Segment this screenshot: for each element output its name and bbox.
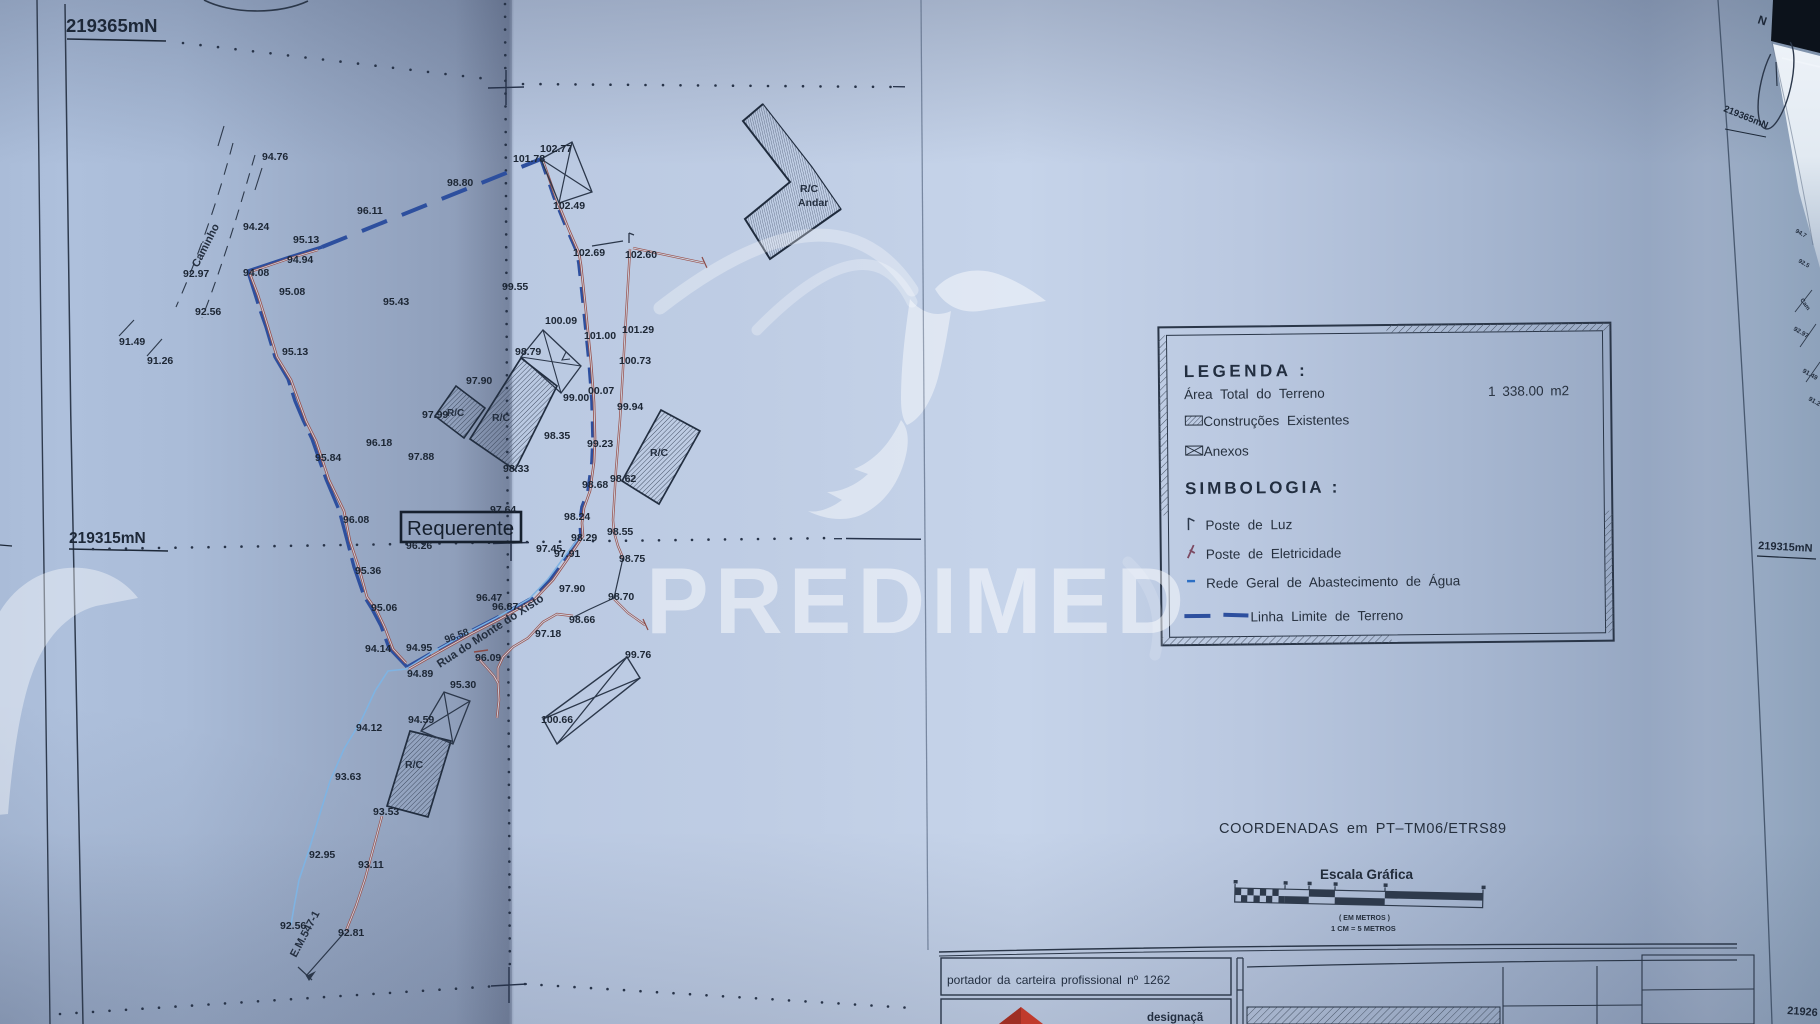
svg-text:92.97: 92.97 xyxy=(183,268,209,280)
svg-text:PREDIMED: PREDIMED xyxy=(646,548,1190,653)
svg-text:96.18: 96.18 xyxy=(366,437,392,449)
svg-text:219315mN: 219315mN xyxy=(69,530,146,547)
svg-text:Andar: Andar xyxy=(798,197,828,209)
svg-text:Área Total do Terreno: Área Total do Terreno xyxy=(1184,386,1325,402)
svg-text:95.43: 95.43 xyxy=(383,296,409,308)
svg-text:94.89: 94.89 xyxy=(407,668,433,680)
svg-text:94.76: 94.76 xyxy=(262,151,288,163)
svg-text:102.49: 102.49 xyxy=(553,200,585,212)
svg-text:97.99: 97.99 xyxy=(422,409,448,421)
svg-text:98.62: 98.62 xyxy=(610,473,636,485)
svg-text:95.30: 95.30 xyxy=(450,679,476,691)
svg-text:R/C: R/C xyxy=(650,447,669,459)
svg-text:94.12: 94.12 xyxy=(356,722,382,734)
svg-text:99.00: 99.00 xyxy=(563,392,589,404)
svg-text:Linha Limite de Terreno: Linha Limite de Terreno xyxy=(1250,608,1403,625)
svg-text:100.66: 100.66 xyxy=(541,714,573,726)
svg-text:91.49: 91.49 xyxy=(119,336,145,348)
svg-text:98.75: 98.75 xyxy=(619,553,645,565)
svg-text:95.13: 95.13 xyxy=(293,234,319,246)
svg-text:97.64: 97.64 xyxy=(490,504,516,516)
svg-text:101.29: 101.29 xyxy=(622,324,654,336)
svg-text:98.24: 98.24 xyxy=(564,511,590,523)
svg-text:1 CM = 5 METROS: 1 CM = 5 METROS xyxy=(1331,924,1396,933)
svg-text:92.95: 92.95 xyxy=(309,849,335,861)
svg-text:00.07: 00.07 xyxy=(588,385,614,397)
svg-text:92.56: 92.56 xyxy=(195,306,221,318)
svg-text:102.69: 102.69 xyxy=(573,247,605,259)
svg-text:94.95: 94.95 xyxy=(406,642,432,654)
svg-text:99.94: 99.94 xyxy=(617,401,643,413)
svg-text:R/C: R/C xyxy=(800,183,819,195)
svg-text:100.73: 100.73 xyxy=(619,355,651,367)
svg-text:R/C: R/C xyxy=(492,412,511,424)
svg-text:99.23: 99.23 xyxy=(587,438,613,450)
svg-text:93.63: 93.63 xyxy=(335,771,361,783)
svg-text:96.09: 96.09 xyxy=(475,652,501,664)
svg-text:98.33: 98.33 xyxy=(503,463,529,475)
svg-text:95.36: 95.36 xyxy=(355,565,381,577)
svg-text:91.26: 91.26 xyxy=(147,355,173,367)
svg-text:95.13: 95.13 xyxy=(282,346,308,358)
svg-text:99.55: 99.55 xyxy=(502,281,528,293)
svg-text:portador da carteira profissio: portador da carteira profissional nº 126… xyxy=(947,973,1171,987)
svg-text:97.90: 97.90 xyxy=(466,375,492,387)
svg-text:97.90: 97.90 xyxy=(559,583,585,595)
svg-text:92.81: 92.81 xyxy=(338,927,364,939)
svg-text:97.88: 97.88 xyxy=(408,451,434,463)
svg-text:Rede Geral de Abastecimento de: Rede Geral de Abastecimento de Água xyxy=(1206,573,1461,591)
svg-text:( EM METROS ): ( EM METROS ) xyxy=(1339,915,1390,922)
svg-text:95.06: 95.06 xyxy=(371,602,397,614)
svg-text:98.55: 98.55 xyxy=(607,526,633,538)
svg-text:94.94: 94.94 xyxy=(287,254,313,266)
svg-text:95.84: 95.84 xyxy=(315,452,341,464)
svg-text:96.26: 96.26 xyxy=(406,540,432,552)
svg-text:94.14: 94.14 xyxy=(365,643,391,655)
svg-text:98.66: 98.66 xyxy=(569,614,595,626)
svg-text:98.35: 98.35 xyxy=(544,430,570,442)
svg-text:98.79: 98.79 xyxy=(515,346,541,358)
svg-text:97.18: 97.18 xyxy=(535,628,561,640)
svg-text:Requerente: Requerente xyxy=(407,517,514,540)
svg-text:Anexos: Anexos xyxy=(1204,443,1249,458)
svg-text:SIMBOLOGIA :: SIMBOLOGIA : xyxy=(1185,478,1341,499)
svg-text:COORDENADAS em PT–TM06/ETRS89: COORDENADAS em PT–TM06/ETRS89 xyxy=(1219,821,1507,837)
svg-text:designaçã: designaçã xyxy=(1147,1012,1204,1024)
svg-text:98.68: 98.68 xyxy=(582,479,608,491)
svg-text:R/C: R/C xyxy=(447,408,464,419)
svg-text:92.56: 92.56 xyxy=(280,920,306,932)
svg-text:100.09: 100.09 xyxy=(545,315,577,327)
svg-text:97.91: 97.91 xyxy=(554,548,580,560)
svg-text:102.60: 102.60 xyxy=(625,249,657,261)
svg-text:94.08: 94.08 xyxy=(243,267,269,279)
svg-text:96.87: 96.87 xyxy=(492,601,518,613)
svg-text:95.08: 95.08 xyxy=(279,286,305,298)
svg-text:98.80: 98.80 xyxy=(447,177,473,189)
svg-text:93.11: 93.11 xyxy=(358,859,384,871)
svg-text:101.78: 101.78 xyxy=(513,153,545,165)
svg-text:93.53: 93.53 xyxy=(373,806,399,818)
svg-text:94.59: 94.59 xyxy=(408,714,434,726)
svg-text:LEGENDA :: LEGENDA : xyxy=(1184,361,1309,381)
svg-text:1 338.00 m2: 1 338.00 m2 xyxy=(1488,383,1569,399)
svg-text:94.24: 94.24 xyxy=(243,221,269,233)
svg-text:R/C: R/C xyxy=(405,759,424,771)
svg-text:21926: 21926 xyxy=(1787,1005,1818,1019)
svg-text:96.11: 96.11 xyxy=(357,205,383,217)
svg-text:101.00: 101.00 xyxy=(584,330,616,342)
svg-text:96.08: 96.08 xyxy=(343,514,369,526)
svg-text:219365mN: 219365mN xyxy=(66,15,158,36)
svg-text:Escala Gráfica: Escala Gráfica xyxy=(1320,867,1414,882)
svg-text:98.70: 98.70 xyxy=(608,591,634,603)
svg-text:Construções Existentes: Construções Existentes xyxy=(1203,412,1349,429)
svg-text:Poste de Luz: Poste de Luz xyxy=(1205,517,1292,533)
svg-text:98.29: 98.29 xyxy=(571,532,597,544)
svg-text:Poste de Eletricidade: Poste de Eletricidade xyxy=(1206,546,1342,562)
